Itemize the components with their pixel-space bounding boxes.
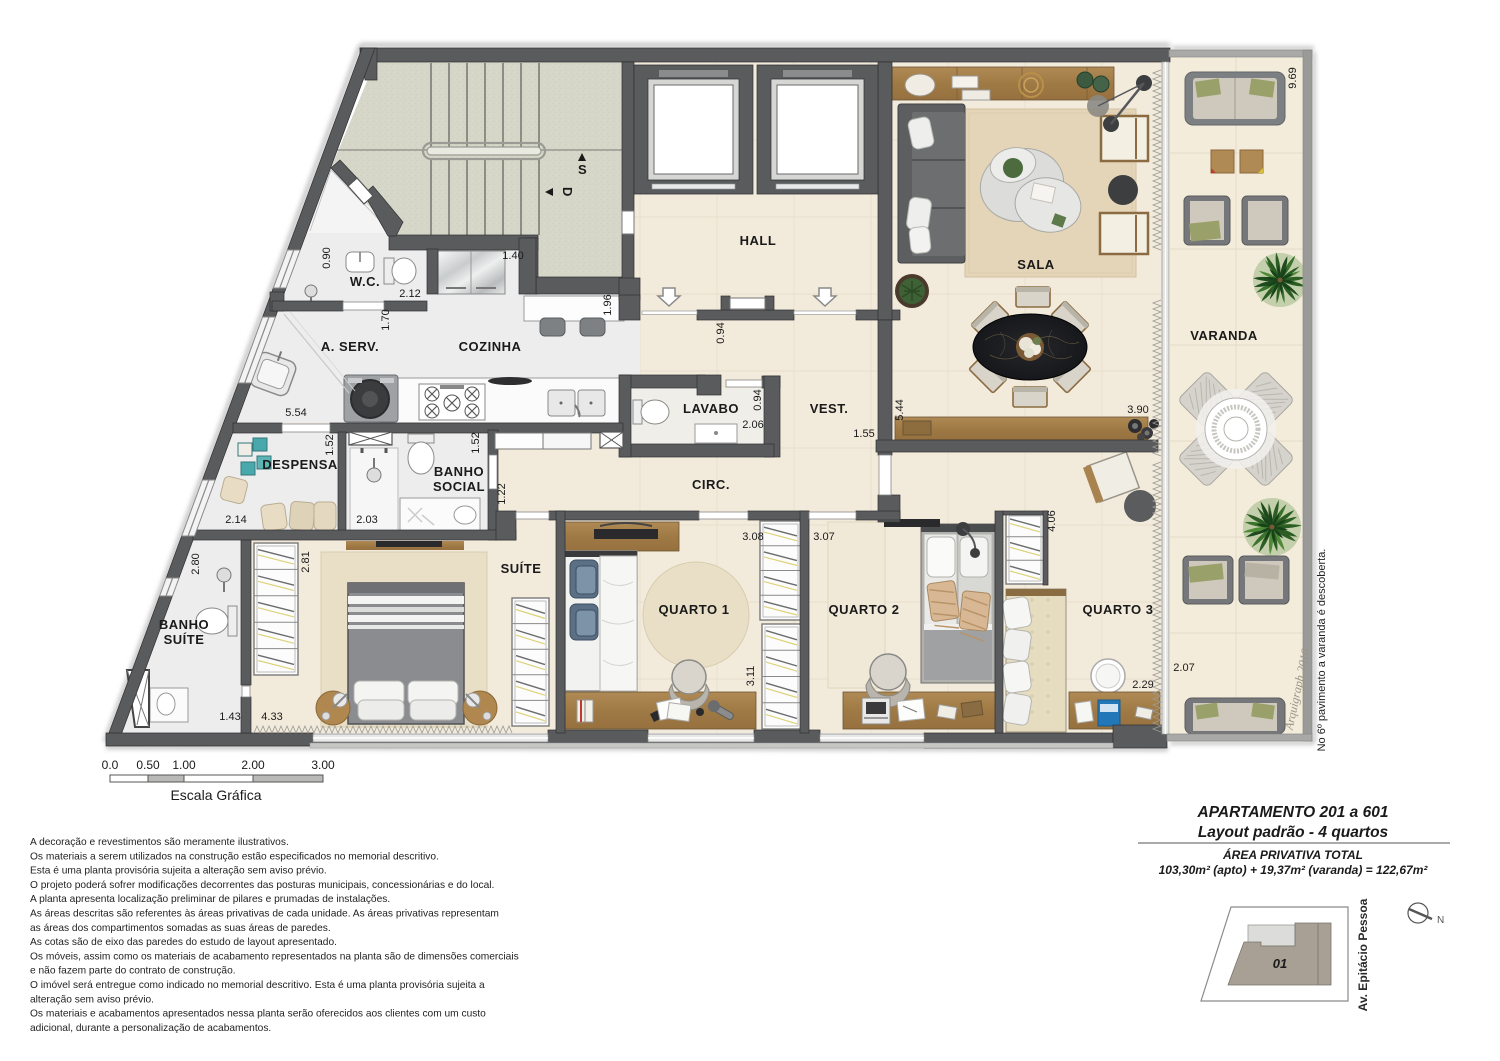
svg-text:A decoração e revestimentos sã: A decoração e revestimentos são merament… [30,837,289,848]
svg-text:QUARTO 3: QUARTO 3 [1083,602,1154,617]
svg-text:1.96: 1.96 [602,294,614,315]
svg-text:103,30m² (apto) + 19,37m² (var: 103,30m² (apto) + 19,37m² (varanda) = 12… [1159,863,1429,877]
svg-text:2.14: 2.14 [225,514,246,526]
svg-text:1.22: 1.22 [496,483,508,504]
svg-text:Os materiais a serem utilizado: Os materiais a serem utilizados na const… [30,851,439,862]
svg-text:3.07: 3.07 [813,531,834,543]
svg-text:DESPENSA: DESPENSA [262,457,338,472]
svg-text:0.0: 0.0 [102,758,119,772]
svg-text:2.81: 2.81 [300,551,312,572]
svg-text:as áreas dos compartimentos so: as áreas dos compartimentos somadas as s… [30,923,331,934]
svg-text:0.90: 0.90 [321,247,333,268]
svg-text:2.06: 2.06 [742,419,763,431]
svg-text:As cotas são de eixo das pared: As cotas são de eixo das paredes do estu… [30,937,337,948]
svg-text:HALL: HALL [740,233,777,248]
svg-text:BANHO: BANHO [434,464,484,479]
svg-text:1.70: 1.70 [380,309,392,330]
svg-text:VEST.: VEST. [810,401,849,416]
svg-text:Layout padrão - 4 quartos: Layout padrão - 4 quartos [1198,824,1389,841]
svg-text:01: 01 [1273,956,1287,971]
svg-text:S: S [578,162,587,177]
svg-text:A planta apresenta localização: A planta apresenta localização prelimina… [30,894,390,905]
svg-text:CIRC.: CIRC. [692,477,730,492]
svg-text:1.00: 1.00 [172,758,196,772]
svg-text:1.40: 1.40 [502,250,523,262]
svg-text:N: N [1437,915,1444,926]
svg-text:e não fazem parte do contrato: e não fazem parte do contrato de constru… [30,966,236,977]
svg-text:A. SERV.: A. SERV. [321,339,379,354]
svg-text:5.44: 5.44 [894,399,906,420]
svg-text:3.00: 3.00 [311,758,335,772]
svg-text:alteração sem aviso prévio.: alteração sem aviso prévio. [30,994,154,1005]
svg-text:SUÍTE: SUÍTE [501,561,542,576]
svg-text:Esta é uma planta provisória s: Esta é uma planta provisória sujeita a a… [30,866,327,877]
svg-text:adicional, durante a personali: adicional, durante a personalização de a… [30,1023,271,1034]
svg-text:9.69: 9.69 [1287,67,1299,88]
svg-text:VARANDA: VARANDA [1190,328,1258,343]
svg-text:4.33: 4.33 [261,711,282,723]
svg-text:QUARTO 2: QUARTO 2 [829,602,900,617]
svg-text:2.29: 2.29 [1132,679,1153,691]
svg-text:1.52: 1.52 [470,432,482,453]
svg-text:COZINHA: COZINHA [459,339,522,354]
svg-text:ÁREA PRIVATIVA TOTAL: ÁREA PRIVATIVA TOTAL [1222,847,1363,862]
svg-text:BANHO: BANHO [159,617,209,632]
svg-text:W.C.: W.C. [350,274,380,289]
svg-text:SOCIAL: SOCIAL [433,479,485,494]
svg-text:O projeto poderá sofrer modifi: O projeto poderá sofrer modificações dec… [30,880,494,891]
svg-text:QUARTO 1: QUARTO 1 [659,602,730,617]
svg-text:0.94: 0.94 [715,322,727,343]
svg-text:Os móveis, assim como os mater: Os móveis, assim como os materiais de ac… [30,951,519,962]
svg-text:2.12: 2.12 [399,288,420,300]
svg-text:3.90: 3.90 [1127,404,1148,416]
svg-text:4.06: 4.06 [1046,510,1058,531]
svg-text:O imóvel será entregue como in: O imóvel será entregue como indicado no … [30,980,485,991]
svg-text:0.50: 0.50 [136,758,160,772]
svg-text:SALA: SALA [1017,257,1055,272]
svg-text:1.52: 1.52 [324,434,336,455]
svg-text:2.00: 2.00 [241,758,265,772]
svg-text:3.11: 3.11 [745,666,757,687]
svg-text:3.08: 3.08 [742,531,763,543]
svg-text:2.80: 2.80 [190,553,202,574]
svg-text:1.43: 1.43 [219,711,240,723]
svg-text:APARTAMENTO 201 a 601: APARTAMENTO 201 a 601 [1197,804,1389,821]
svg-text:0.94: 0.94 [752,389,764,410]
svg-text:2.03: 2.03 [356,514,377,526]
svg-text:No 6º pavimento a varanda é de: No 6º pavimento a varanda é descoberta. [1316,549,1328,752]
svg-text:Escala Gráfica: Escala Gráfica [170,787,261,803]
svg-text:LAVABO: LAVABO [683,401,739,416]
svg-text:1.55: 1.55 [853,428,874,440]
svg-text:SUÍTE: SUÍTE [164,632,205,647]
svg-text:5.54: 5.54 [285,407,306,419]
svg-text:2.07: 2.07 [1173,662,1194,674]
svg-text:As áreas descritas são referen: As áreas descritas são referentes às áre… [30,909,499,920]
svg-text:Av. Epitácio Pessoa: Av. Epitácio Pessoa [1356,898,1370,1011]
svg-text:Os materiais e acabamentos apr: Os materiais e acabamentos apresentados … [30,1009,486,1020]
svg-text:D: D [560,187,575,196]
